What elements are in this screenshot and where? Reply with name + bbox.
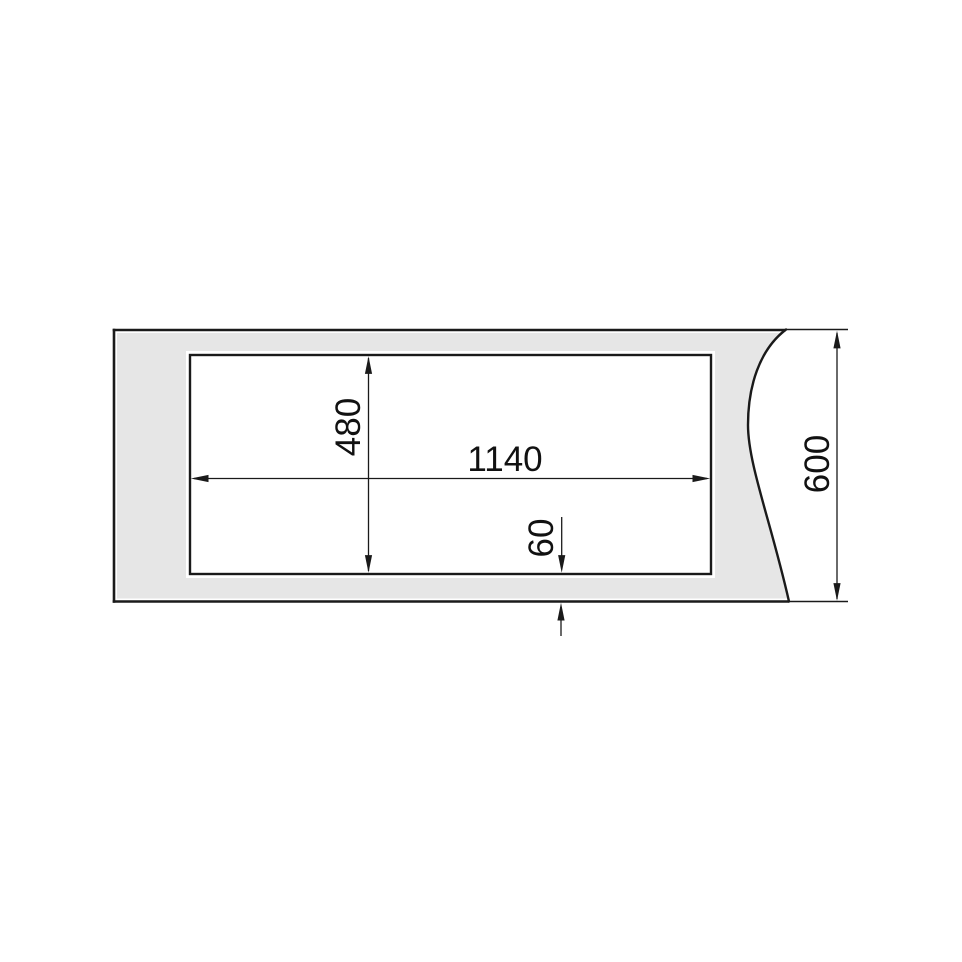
screenshot-canvas: 1140 480 60 600	[0, 0, 962, 962]
dimension-cutout-width-label: 1140	[467, 440, 542, 479]
dimension-cutout-height-label: 480	[329, 398, 368, 456]
cutout-dimension-drawing: 1140 480 60 600	[0, 0, 962, 962]
dimension-bottom-offset-label: 60	[522, 519, 561, 558]
dimension-worktop-depth: 600	[798, 331, 841, 601]
cutout-opening	[190, 355, 711, 574]
arrowhead-down-icon	[833, 583, 840, 601]
arrowhead-up-icon	[557, 603, 564, 621]
arrowhead-up-icon	[833, 331, 840, 349]
dimension-bottom-offset: 60	[522, 517, 565, 636]
dimension-worktop-depth-label: 600	[798, 435, 837, 493]
